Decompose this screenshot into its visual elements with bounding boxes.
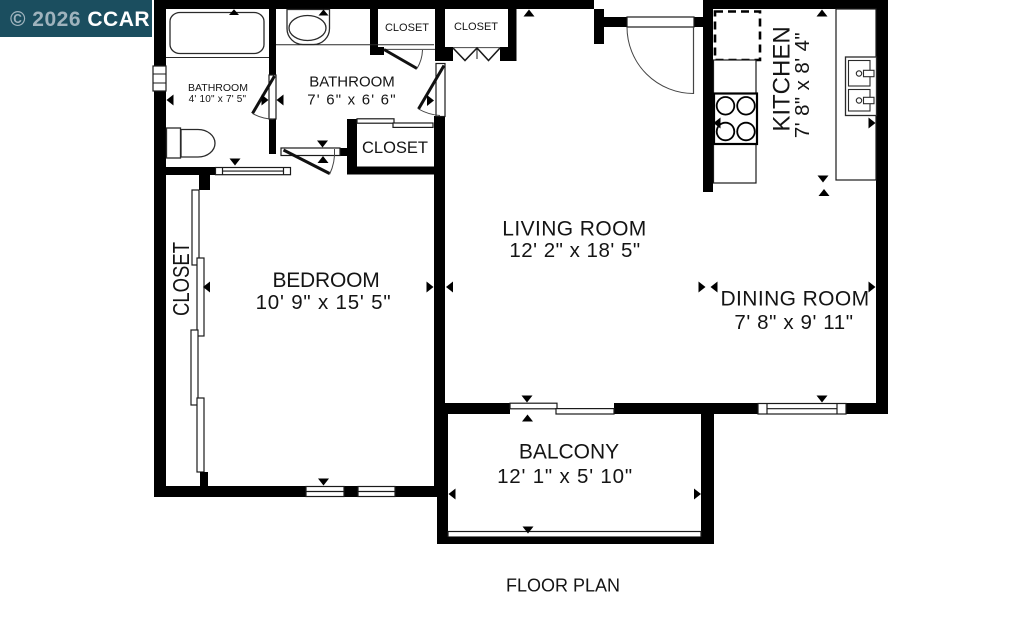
svg-text:12' 1" x 5' 10": 12' 1" x 5' 10" bbox=[497, 465, 633, 488]
svg-text:CLOSET: CLOSET bbox=[168, 242, 194, 316]
svg-text:DINING ROOM: DINING ROOM bbox=[720, 288, 869, 311]
svg-text:7' 8" x 8' 4": 7' 8" x 8' 4" bbox=[791, 32, 814, 138]
svg-text:12' 2" x 18' 5": 12' 2" x 18' 5" bbox=[509, 239, 640, 262]
svg-text:7' 6" x 6' 6": 7' 6" x 6' 6" bbox=[307, 92, 397, 109]
svg-text:BATHROOM: BATHROOM bbox=[309, 74, 395, 91]
svg-text:BATHROOM: BATHROOM bbox=[188, 82, 248, 94]
svg-text:CLOSET: CLOSET bbox=[454, 21, 498, 33]
svg-text:BEDROOM: BEDROOM bbox=[272, 269, 379, 292]
svg-text:CLOSET: CLOSET bbox=[385, 22, 429, 34]
svg-text:LIVING ROOM: LIVING ROOM bbox=[502, 218, 646, 241]
svg-text:© 2026 CCAR: © 2026 CCAR bbox=[10, 8, 150, 31]
svg-text:7' 8" x 9' 11": 7' 8" x 9' 11" bbox=[734, 311, 853, 334]
svg-text:FLOOR PLAN: FLOOR PLAN bbox=[506, 576, 620, 596]
svg-text:4' 10" x 7' 5": 4' 10" x 7' 5" bbox=[189, 94, 247, 105]
svg-text:10' 9" x 15' 5": 10' 9" x 15' 5" bbox=[256, 291, 392, 314]
svg-text:CLOSET: CLOSET bbox=[362, 139, 428, 157]
svg-text:BALCONY: BALCONY bbox=[519, 441, 619, 464]
